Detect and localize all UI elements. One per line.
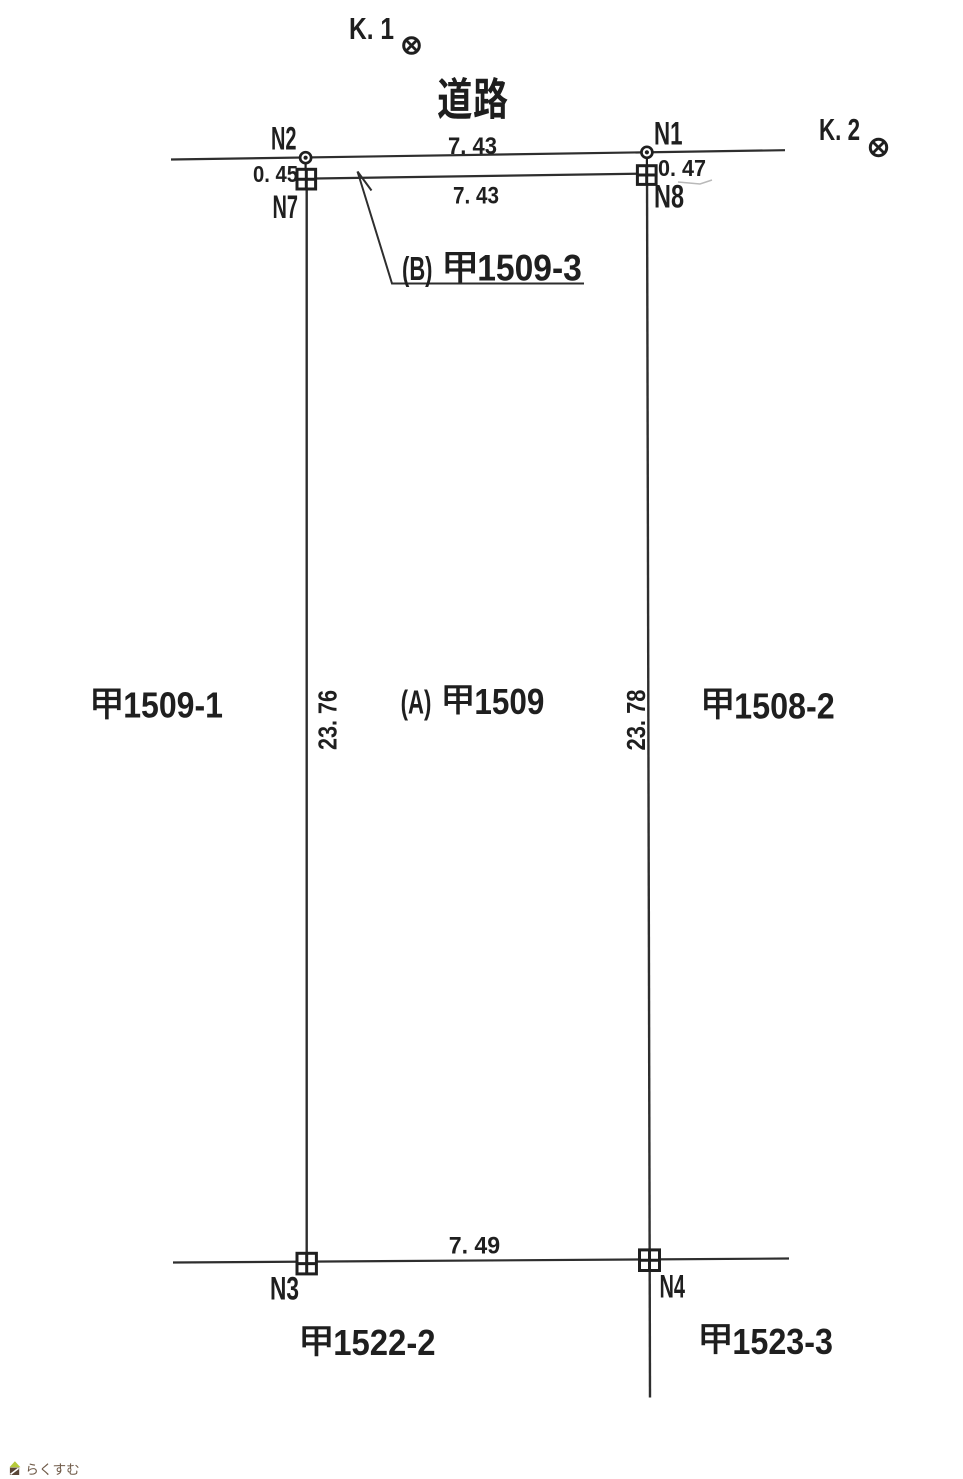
svg-text:1522-2: 1522-2 [333,1322,435,1363]
svg-text:K. 1: K. 1 [349,11,394,46]
svg-text:1523-3: 1523-3 [732,1321,833,1362]
svg-text:1509-1: 1509-1 [123,685,223,726]
svg-text:(B): (B) [402,250,433,287]
svg-text:7. 43: 7. 43 [453,183,499,210]
svg-text:1509: 1509 [474,681,544,722]
svg-text:N1: N1 [654,116,683,152]
svg-text:0. 45: 0. 45 [253,161,298,187]
svg-text:0. 47: 0. 47 [658,155,706,181]
svg-text:N8: N8 [654,179,684,215]
svg-text:K. 2: K. 2 [819,112,860,147]
svg-text:N3: N3 [270,1271,299,1307]
svg-text:1509-3: 1509-3 [477,247,582,288]
svg-text:1508-2: 1508-2 [734,686,835,727]
svg-text:N4: N4 [660,1269,686,1305]
svg-text:(A): (A) [401,684,432,721]
svg-text:N2: N2 [271,121,297,157]
svg-text:23. 76: 23. 76 [313,690,343,750]
svg-text:23. 78: 23. 78 [621,690,651,751]
svg-text:7. 49: 7. 49 [449,1233,501,1260]
svg-text:7. 43: 7. 43 [448,133,497,160]
svg-text:N7: N7 [273,189,299,225]
